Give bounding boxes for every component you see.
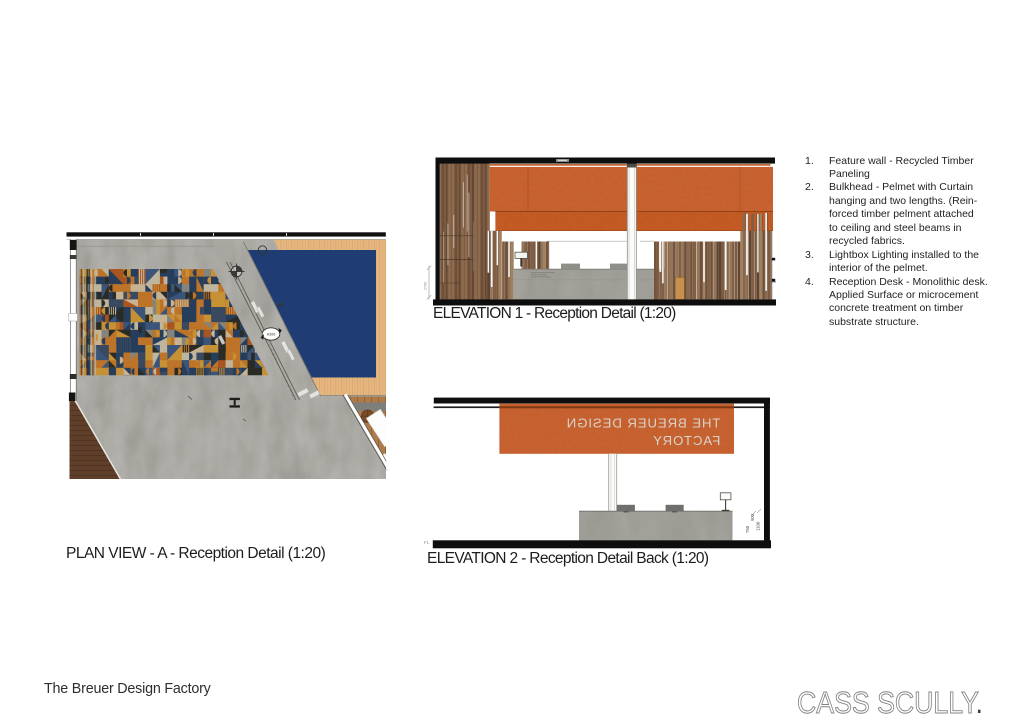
svg-text:A300: A300: [267, 333, 275, 337]
svg-text:THE BREUER DESIGN: THE BREUER DESIGN: [566, 415, 721, 430]
svg-text:750: 750: [745, 525, 750, 533]
svg-text:FL: FL: [424, 540, 430, 545]
svg-text:1100: 1100: [755, 521, 760, 531]
svg-text:FACTORY: FACTORY: [652, 433, 720, 448]
svg-text:2700: 2700: [423, 282, 427, 290]
